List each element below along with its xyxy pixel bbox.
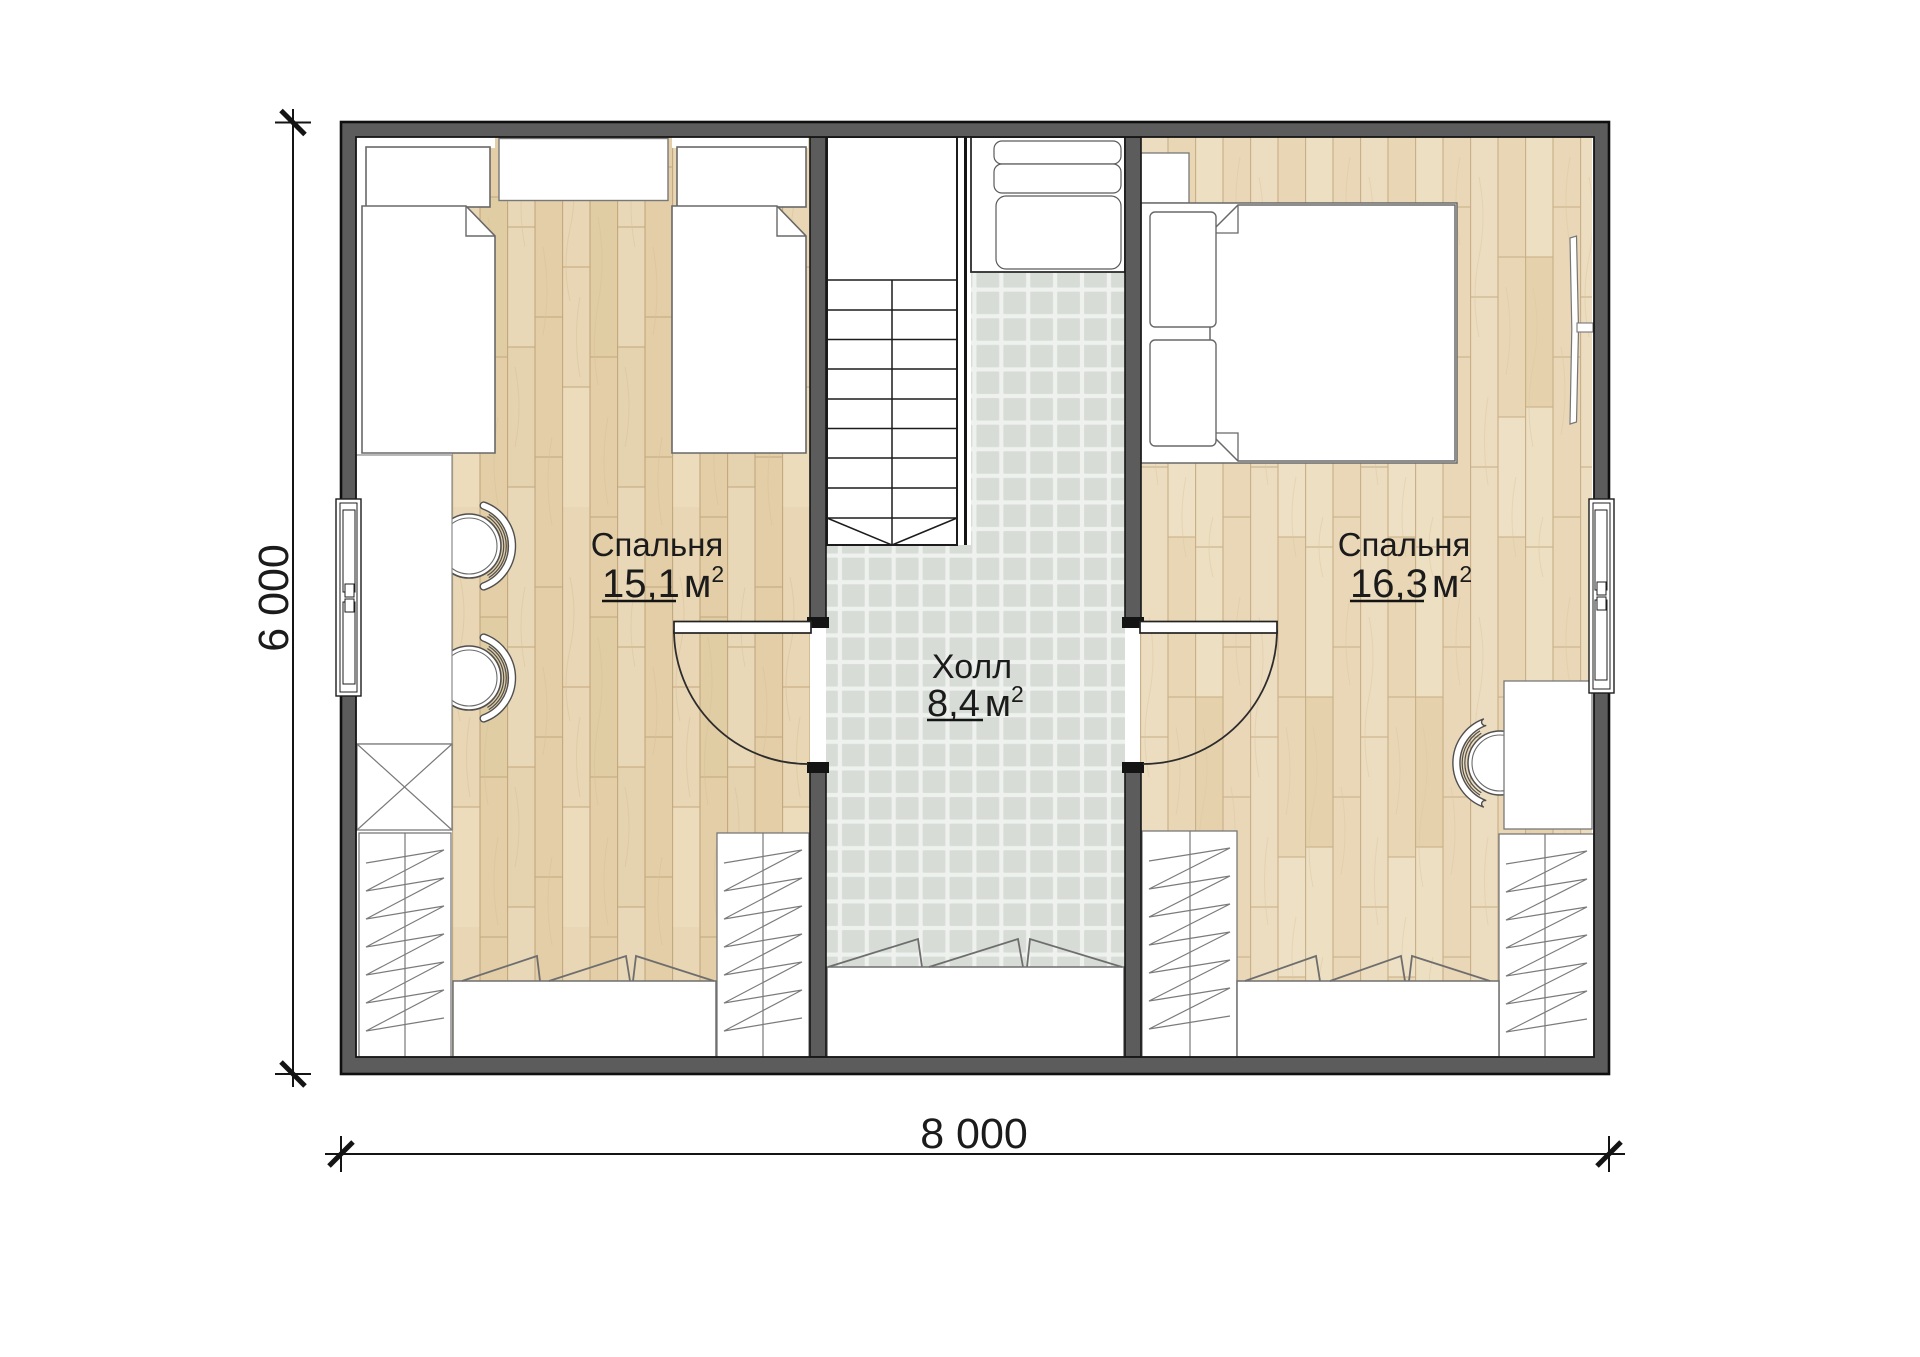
svg-text:Холл: Холл [932,648,1012,686]
svg-text:15,1м2: 15,1м2 [602,561,724,606]
svg-text:Спальня: Спальня [591,526,724,563]
svg-text:Спальня: Спальня [1338,526,1471,563]
svg-text:16,3м2: 16,3м2 [1350,561,1472,606]
svg-text:8,4м2: 8,4м2 [927,681,1024,725]
svg-text:6 000: 6 000 [250,544,298,652]
svg-text:8 000: 8 000 [920,1110,1028,1158]
